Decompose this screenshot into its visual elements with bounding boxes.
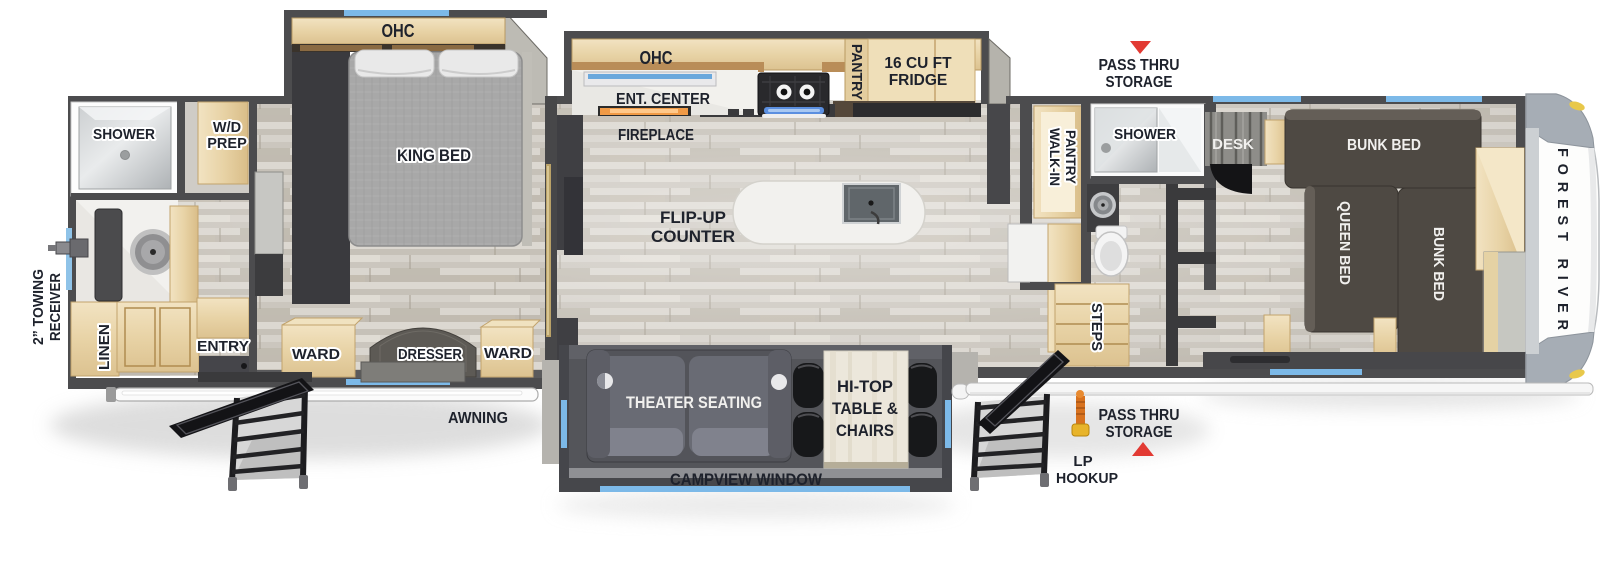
svg-text:16 CU FT: 16 CU FT	[884, 55, 952, 72]
svg-text:FLIP-UP: FLIP-UP	[660, 208, 726, 227]
svg-text:DRESSER: DRESSER	[398, 346, 462, 363]
svg-text:LINEN: LINEN	[96, 324, 113, 370]
svg-text:PANTRY: PANTRY	[1063, 130, 1078, 184]
svg-text:FRIDGE: FRIDGE	[889, 72, 948, 89]
svg-text:BUNK BED: BUNK BED	[1430, 227, 1447, 301]
svg-text:BUNK BED: BUNK BED	[1347, 137, 1421, 154]
svg-text:SHOWER: SHOWER	[93, 126, 155, 143]
svg-text:CAMPVIEW WINDOW: CAMPVIEW WINDOW	[670, 470, 823, 489]
svg-text:WARD: WARD	[292, 346, 340, 363]
svg-text:LP: LP	[1073, 453, 1092, 470]
svg-text:CHAIRS: CHAIRS	[836, 421, 894, 440]
svg-text:OHC: OHC	[382, 21, 415, 41]
svg-text:THEATER SEATING: THEATER SEATING	[626, 393, 762, 412]
svg-text:PASS THRU: PASS THRU	[1099, 57, 1180, 74]
svg-text:FIREPLACE: FIREPLACE	[618, 127, 694, 144]
svg-text:COUNTER: COUNTER	[651, 227, 735, 246]
svg-text:W/D: W/D	[213, 120, 241, 136]
svg-text:KING BED: KING BED	[397, 146, 471, 165]
svg-text:AWNING: AWNING	[448, 410, 508, 427]
svg-text:STORAGE: STORAGE	[1106, 424, 1173, 441]
svg-text:RECEIVER: RECEIVER	[47, 273, 64, 341]
svg-text:HI-TOP: HI-TOP	[837, 377, 893, 396]
svg-text:QUEEN BED: QUEEN BED	[1336, 201, 1353, 285]
svg-text:HOOKUP: HOOKUP	[1056, 470, 1118, 487]
svg-text:TABLE &: TABLE &	[832, 399, 898, 418]
svg-text:WALK-IN: WALK-IN	[1047, 128, 1062, 186]
svg-text:ENT. CENTER: ENT. CENTER	[616, 91, 710, 108]
svg-text:PREP: PREP	[207, 136, 247, 152]
svg-text:SHOWER: SHOWER	[1114, 126, 1176, 143]
svg-text:PANTRY: PANTRY	[848, 44, 865, 100]
svg-text:WARD: WARD	[484, 345, 532, 362]
svg-text:2” TOWING: 2” TOWING	[30, 269, 47, 345]
svg-text:PASS THRU: PASS THRU	[1099, 407, 1180, 424]
svg-text:DESK: DESK	[1212, 136, 1254, 153]
svg-text:OHC: OHC	[640, 48, 673, 68]
svg-text:STEPS: STEPS	[1088, 303, 1104, 351]
svg-text:ENTRY: ENTRY	[197, 338, 249, 355]
svg-text:STORAGE: STORAGE	[1106, 74, 1173, 91]
